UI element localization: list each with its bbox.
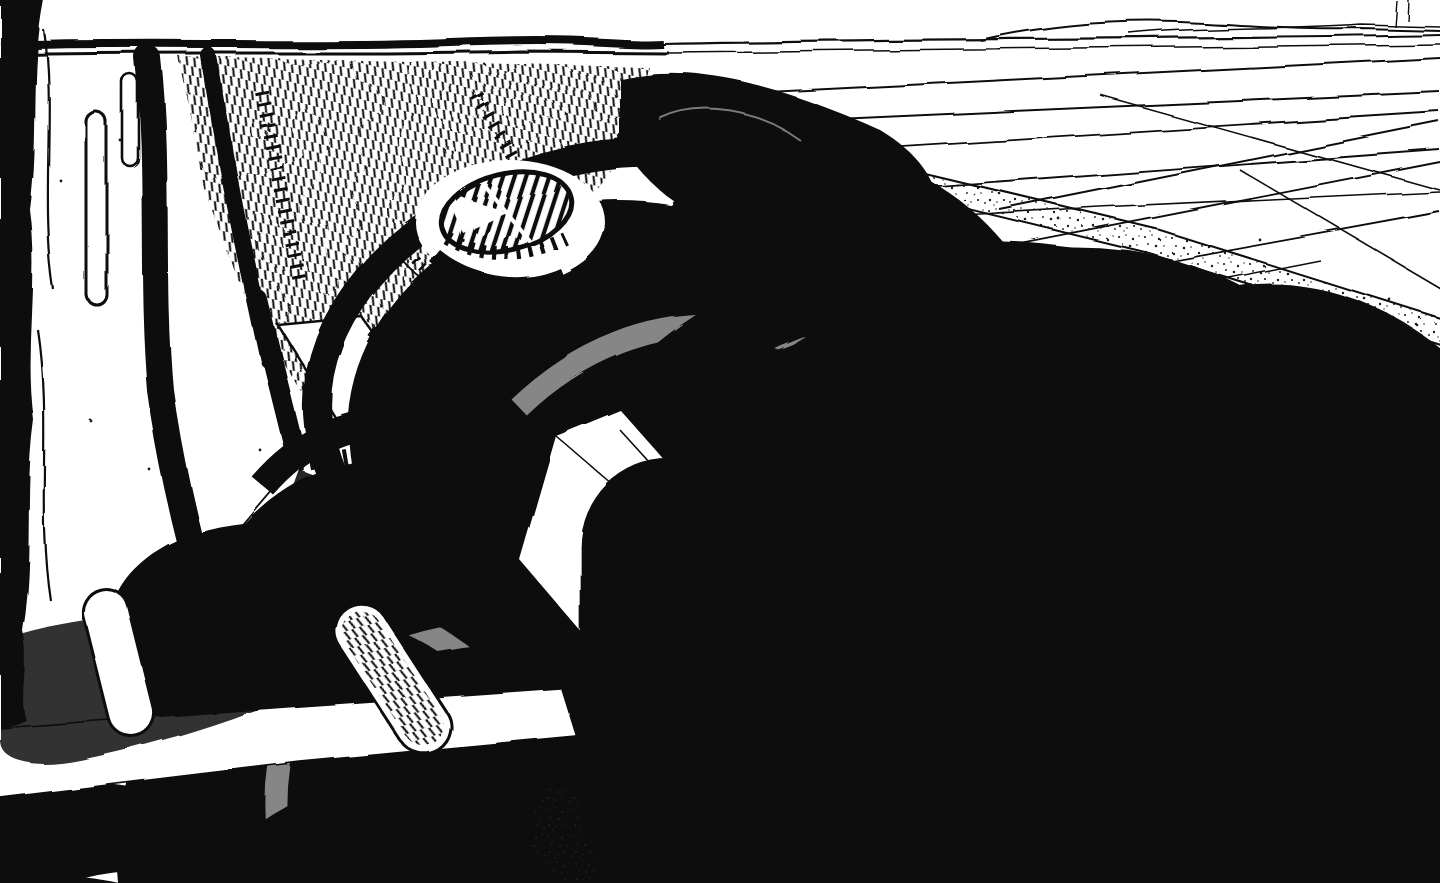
ink-dot [1259, 239, 1262, 242]
ink-dot [89, 419, 92, 422]
ink-dot [149, 469, 152, 472]
ink-dot [259, 449, 262, 452]
sketch-page: aerial perspective drawing of a landscap… [0, 0, 1440, 883]
ink-sketch-figure: aerial perspective drawing of a landscap… [0, 0, 1440, 883]
ink-dot [59, 179, 62, 182]
canal-capsule [86, 112, 106, 304]
canal-capsule [122, 74, 138, 166]
